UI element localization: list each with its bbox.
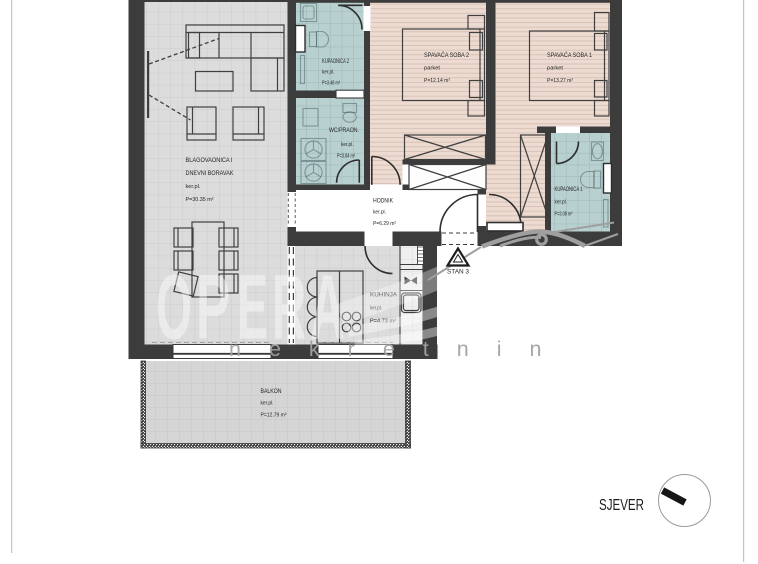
svg-text:ker.pl.: ker.pl. xyxy=(373,210,386,216)
svg-text:SPAVAĆA SOBA 1: SPAVAĆA SOBA 1 xyxy=(547,52,593,59)
svg-text:ker.pl.: ker.pl. xyxy=(261,401,274,407)
svg-text:nekretnin: nekretnin xyxy=(229,337,569,361)
svg-text:ker.pl.: ker.pl. xyxy=(341,142,354,148)
svg-text:ker.pl.: ker.pl. xyxy=(322,70,335,76)
svg-text:P=13.27 m²: P=13.27 m² xyxy=(547,78,573,84)
svg-text:BLAGOVAONICA I: BLAGOVAONICA I xyxy=(186,158,233,164)
svg-text:WC/PRAON.: WC/PRAON. xyxy=(329,128,359,134)
svg-text:SJEVER: SJEVER xyxy=(599,497,644,514)
svg-text:P=3.84 m²: P=3.84 m² xyxy=(337,154,355,160)
svg-text:P=30.35 m²: P=30.35 m² xyxy=(186,197,214,203)
svg-text:P: P xyxy=(196,257,230,359)
svg-text:O: O xyxy=(156,257,192,359)
svg-text:ker.pl.: ker.pl. xyxy=(555,200,568,206)
svg-text:SPAVAĆA SOBA 2: SPAVAĆA SOBA 2 xyxy=(424,52,470,59)
svg-text:KUPAONICA 1: KUPAONICA 1 xyxy=(555,187,583,193)
svg-text:P=6.29 m²: P=6.29 m² xyxy=(373,221,396,227)
svg-text:parket: parket xyxy=(547,66,563,72)
svg-text:HODNIK: HODNIK xyxy=(373,199,393,205)
svg-text:STAN 3: STAN 3 xyxy=(447,269,469,276)
svg-text:P=12.14 m²: P=12.14 m² xyxy=(424,78,450,84)
svg-text:parket: parket xyxy=(424,66,440,72)
svg-text:BALKON: BALKON xyxy=(261,389,282,395)
svg-text:DNEVNI BORAVAK: DNEVNI BORAVAK xyxy=(186,171,234,177)
svg-text:KUPAONICA 2: KUPAONICA 2 xyxy=(322,59,349,65)
svg-text:P=12.79 m²: P=12.79 m² xyxy=(261,413,287,419)
svg-text:ker.pl.: ker.pl. xyxy=(186,184,201,190)
svg-text:P=3.08 m²: P=3.08 m² xyxy=(555,212,573,218)
svg-text:P=3.48 m²: P=3.48 m² xyxy=(322,81,340,87)
